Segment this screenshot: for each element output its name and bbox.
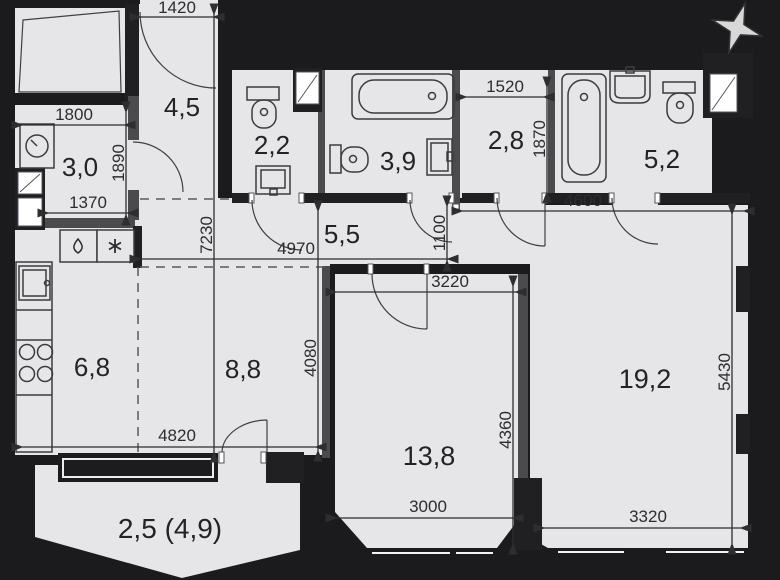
utility-cabinets — [60, 230, 134, 262]
closet-floor — [15, 8, 125, 93]
duct-shaft-icon — [293, 68, 322, 112]
dim-label: 4970 — [277, 239, 315, 258]
dim-label: 1870 — [530, 120, 549, 158]
dim-label: 3320 — [629, 507, 667, 526]
dim-label: 1420 — [158, 0, 196, 17]
dim-label: 1800 — [55, 105, 93, 124]
floor-plan-canvas: 1420 1800 1890 1370 1520 1870 4600 4970 … — [0, 0, 780, 580]
floor-plan-svg: 1420 1800 1890 1370 1520 1870 4600 4970 … — [0, 0, 780, 580]
dim-label: 4080 — [301, 339, 320, 377]
dim-label: 4360 — [496, 411, 515, 449]
room-label-laundry: 3,0 — [62, 152, 98, 182]
pilaster — [736, 414, 750, 454]
room-label-wc: 2,2 — [254, 130, 290, 160]
dim-label: 1890 — [109, 144, 128, 182]
dim-label: 1370 — [69, 193, 107, 212]
room-label-hallway: 4,5 — [164, 92, 200, 122]
dim-label: 3220 — [431, 272, 469, 291]
room-label-kitchen: 6,8 — [74, 352, 110, 382]
dim-label: 7230 — [197, 216, 216, 254]
room-label-bathroom: 3,9 — [380, 146, 416, 176]
room-label-corridor: 5,5 — [324, 219, 360, 249]
column — [514, 478, 542, 550]
duct-shaft-icon — [15, 168, 45, 230]
room-label-bathroom2: 5,2 — [644, 144, 680, 174]
shower-tray-icon — [703, 53, 753, 118]
room-label-bedroom: 13,8 — [403, 441, 456, 471]
pilaster — [736, 266, 750, 312]
balcony-column — [266, 452, 304, 483]
dim-label: 4600 — [564, 191, 602, 210]
dim-label: 1520 — [486, 77, 524, 96]
dim-label: 5430 — [715, 353, 734, 391]
dim-label: 1100 — [430, 215, 449, 252]
room-label-balcony: 2,5 (4,9) — [118, 513, 222, 544]
room-label-wardrobe: 2,8 — [488, 125, 524, 155]
room-label-living: 8,8 — [225, 354, 261, 384]
room-label-livingroom: 19,2 — [619, 364, 672, 394]
floor-areas — [15, 4, 748, 578]
dim-label: 4820 — [158, 426, 196, 445]
dim-label: 3000 — [409, 497, 447, 516]
